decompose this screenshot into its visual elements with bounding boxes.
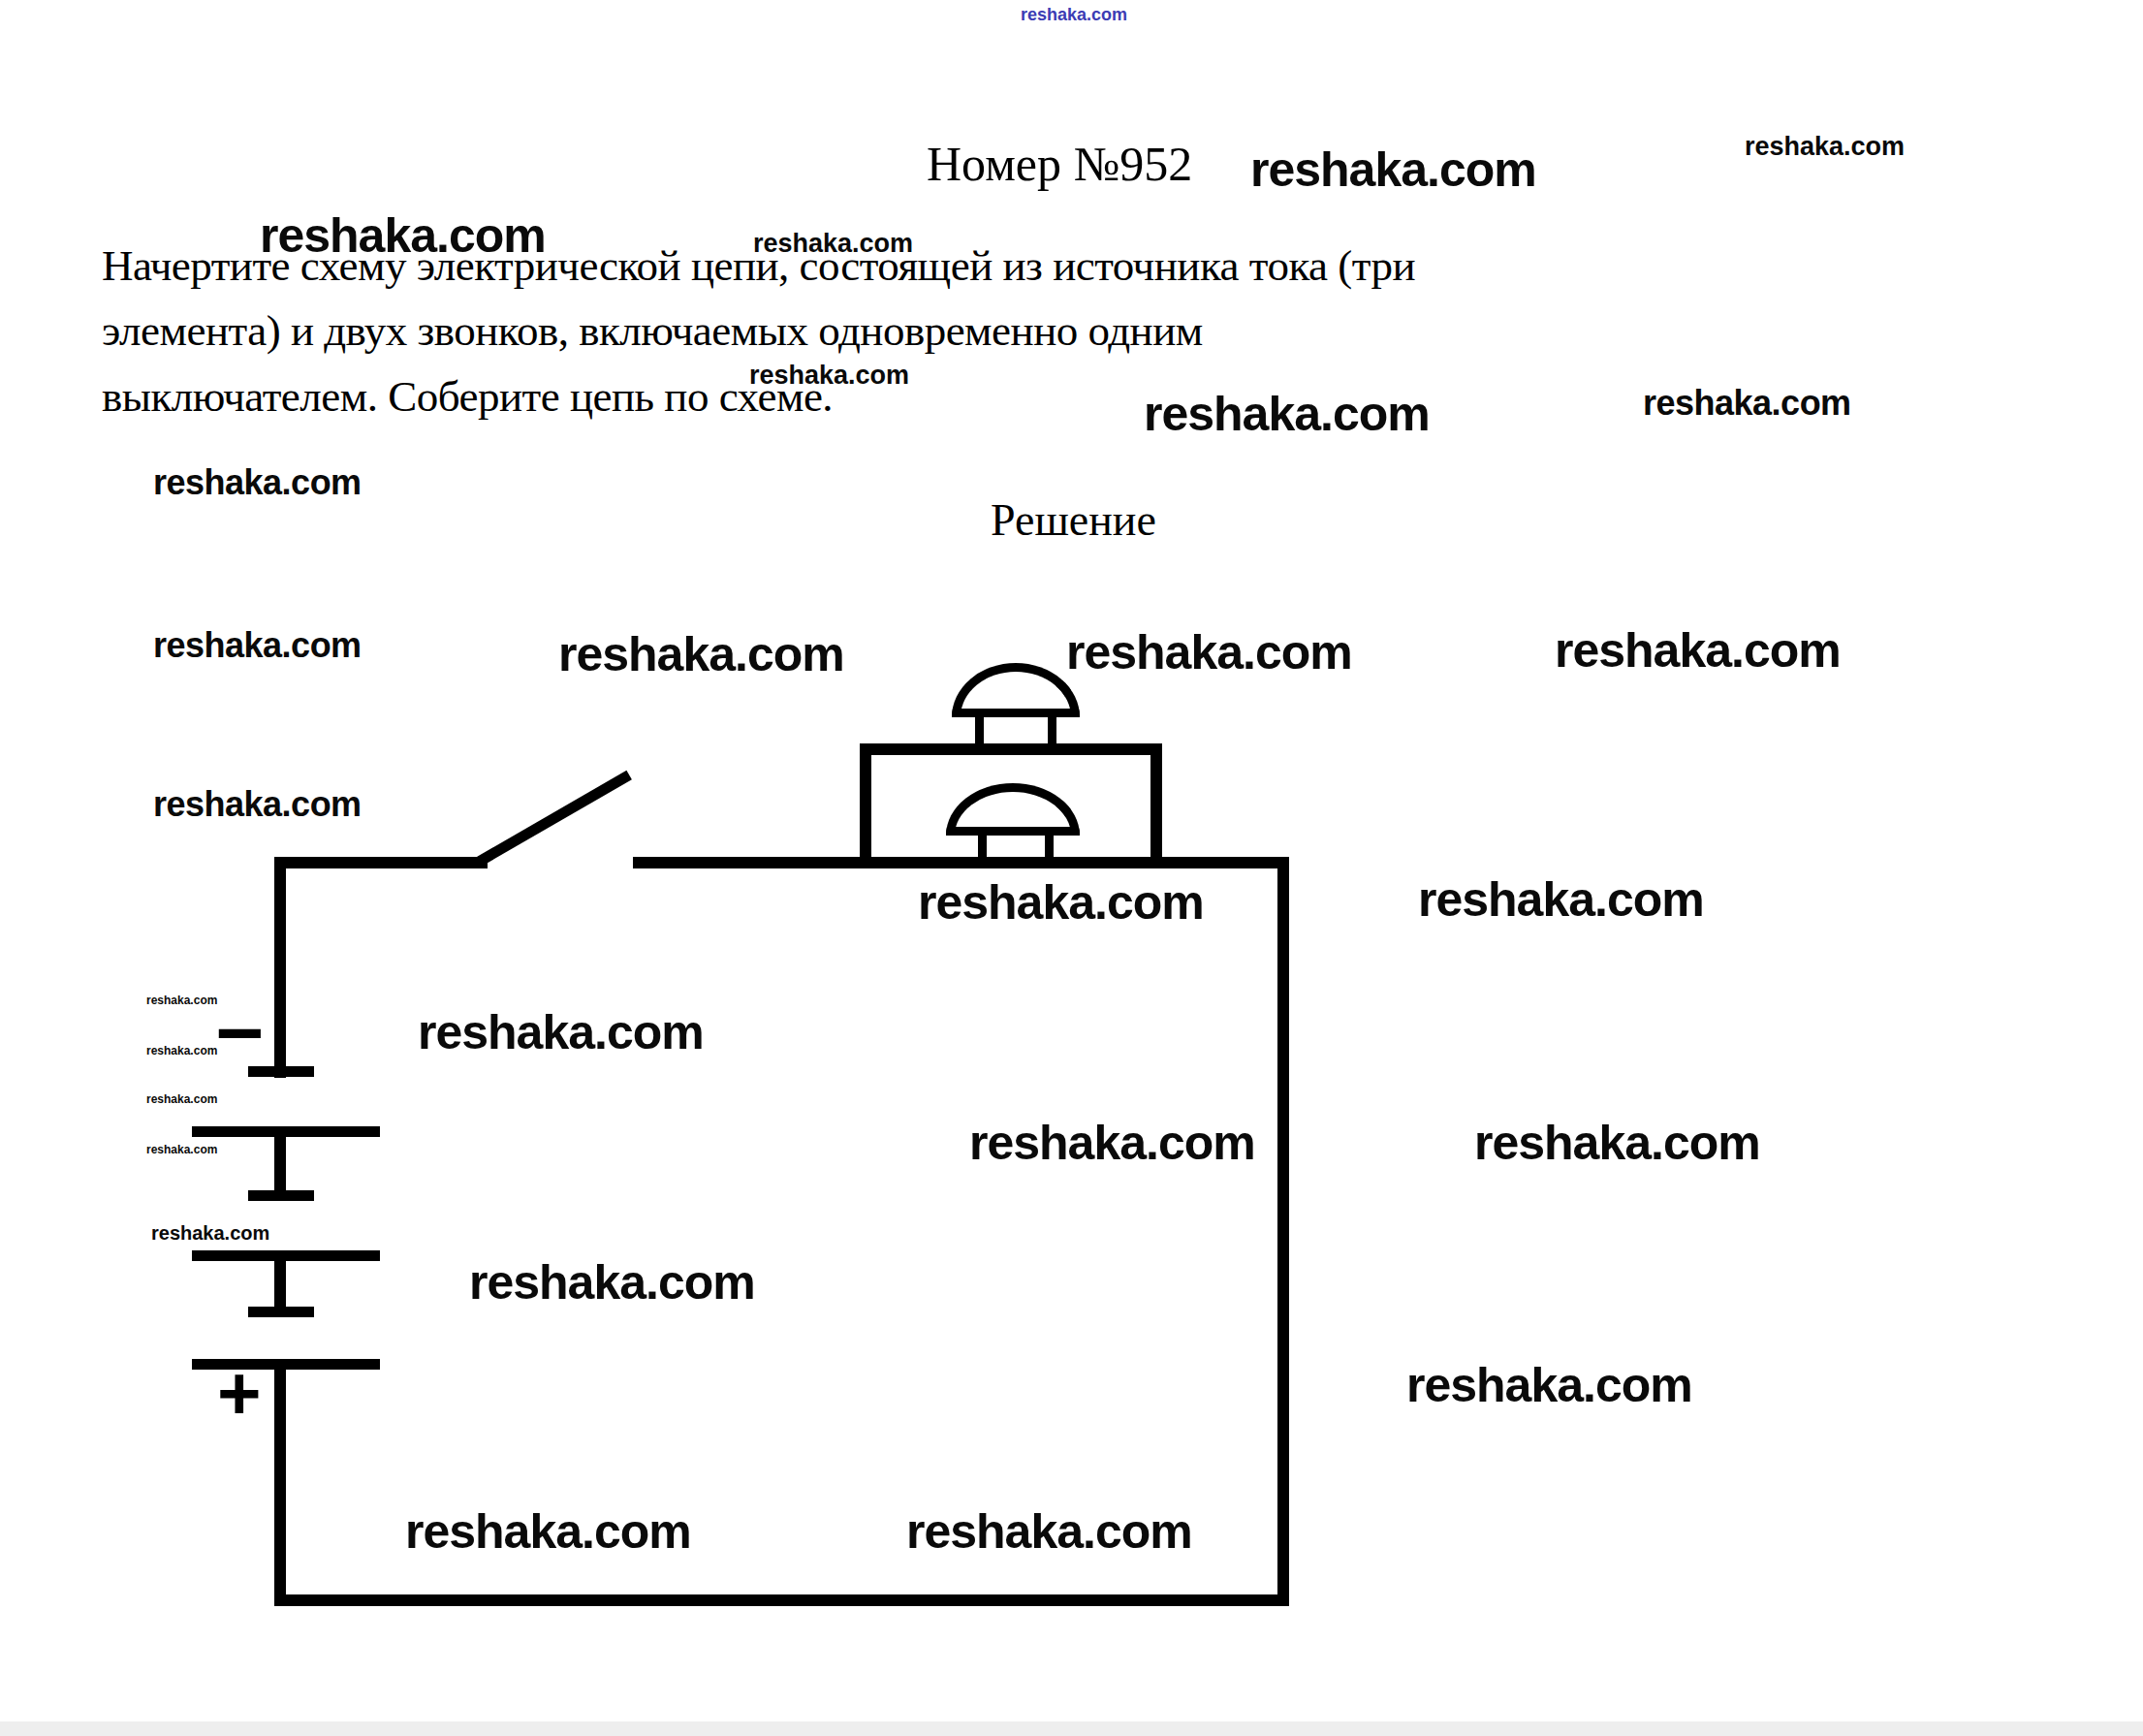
bell-branch-left-wire <box>860 743 871 863</box>
battery-plate-short-1 <box>248 1066 314 1077</box>
watermark: reshaka.com <box>1144 390 1430 438</box>
problem-text-line: выключателем. Соберите цепь по схеме. <box>102 371 833 422</box>
problem-text-line: элемента) и двух звонков, включаемых одн… <box>102 305 1203 356</box>
bell-1-leg-right <box>1048 713 1056 750</box>
watermark: reshaka.com <box>1066 628 1352 677</box>
watermark: reshaka.com <box>1643 386 1851 421</box>
bell-2-leg-right <box>1045 830 1054 863</box>
watermark: reshaka.com <box>146 1093 217 1105</box>
switch-blade <box>477 771 632 867</box>
watermark: reshaka.com <box>146 994 217 1006</box>
watermark: reshaka.com <box>405 1507 691 1556</box>
watermark: reshaka.com <box>918 878 1204 927</box>
battery-link-wire-2 <box>274 1258 286 1312</box>
bell-2-leg-left <box>978 830 987 863</box>
bell-1-leg-left <box>975 713 984 750</box>
watermark: reshaka.com <box>146 1045 217 1057</box>
wire-top-right <box>633 857 1289 868</box>
battery-plate-short-3 <box>248 1307 314 1317</box>
battery-plus-sign: + <box>217 1355 262 1431</box>
watermark: reshaka.com <box>1745 134 1905 160</box>
watermark: reshaka.com <box>146 1144 217 1155</box>
wire-right <box>1277 857 1289 1606</box>
watermark: reshaka.com <box>1250 145 1536 194</box>
watermark: reshaka.com <box>153 628 362 663</box>
solution-heading: Решение <box>991 494 1156 546</box>
watermark: reshaka.com <box>1406 1361 1692 1409</box>
problem-text-line: Начертите схему электрической цепи, сост… <box>102 240 1415 291</box>
watermark: reshaka.com <box>418 1008 704 1057</box>
watermark: reshaka.com <box>151 1223 269 1243</box>
watermark: reshaka.com <box>906 1507 1192 1556</box>
battery-minus-sign: − <box>215 991 264 1074</box>
watermark: reshaka.com <box>1474 1119 1760 1167</box>
watermark: reshaka.com <box>1555 626 1841 675</box>
page-title: Номер №952 <box>927 136 1192 192</box>
wire-bottom <box>274 1594 1289 1606</box>
page-bottom-strip <box>0 1721 2143 1736</box>
page: reshaka.com Номер №952 reshaka.com resha… <box>0 0 2143 1736</box>
wire-left-upper <box>274 857 286 1078</box>
battery-plate-short-2 <box>248 1190 314 1201</box>
bell-2-dome-icon <box>946 783 1080 836</box>
watermark: reshaka.com <box>1418 875 1704 924</box>
watermark: reshaka.com <box>558 630 844 679</box>
watermark: reshaka.com <box>1021 6 1127 23</box>
watermark: reshaka.com <box>469 1258 755 1307</box>
watermark: reshaka.com <box>969 1119 1255 1167</box>
bell-branch-top-wire <box>860 743 1162 755</box>
wire-top-left <box>274 857 488 868</box>
watermark: reshaka.com <box>153 465 362 500</box>
battery-plate-long-1 <box>192 1126 380 1137</box>
battery-link-wire-1 <box>274 1134 286 1194</box>
wire-left-lower <box>274 1365 286 1606</box>
bell-branch-right-wire <box>1150 743 1162 863</box>
battery-plate-long-2 <box>192 1250 380 1261</box>
watermark: reshaka.com <box>153 787 362 822</box>
bell-1-dome-icon <box>952 663 1080 717</box>
